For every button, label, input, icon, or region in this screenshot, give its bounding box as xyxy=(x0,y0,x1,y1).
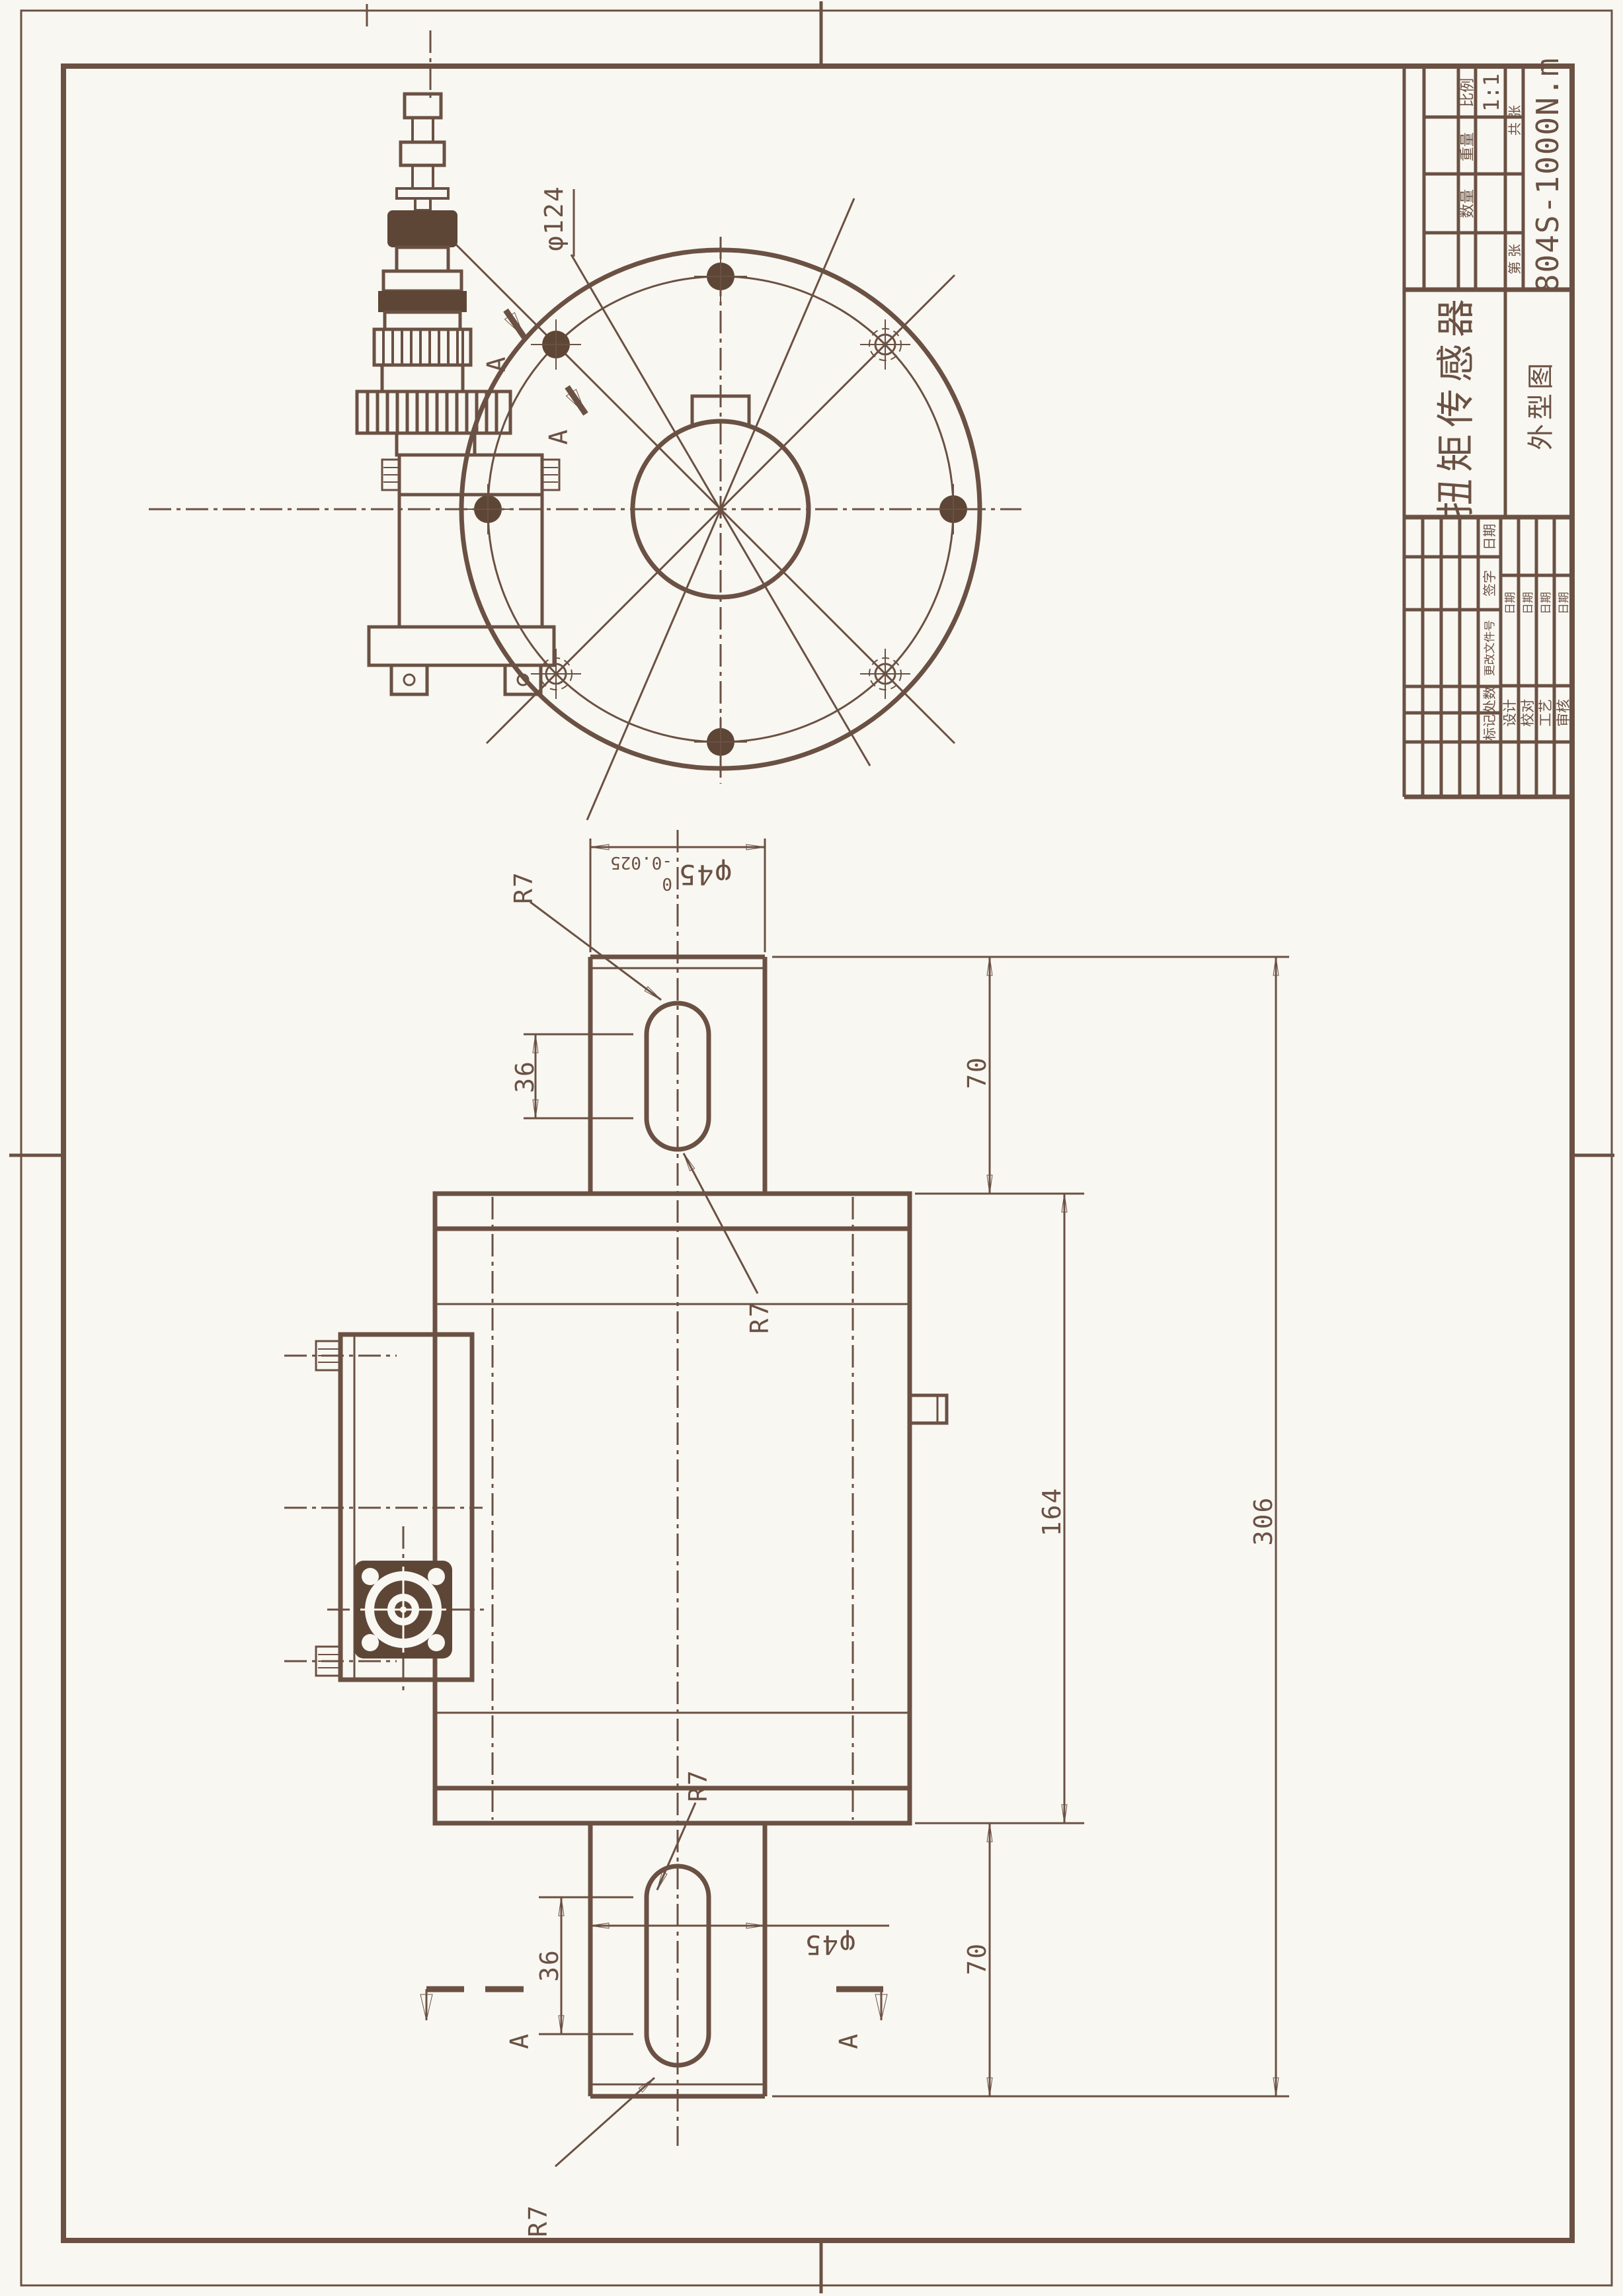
dimension-annotations: φ45 0 -0.025 R7 R7 36 70 xyxy=(509,839,1289,2237)
svg-text:0: 0 xyxy=(662,874,672,893)
scale-value: 1:1 xyxy=(1479,73,1504,112)
dim-shaft-dia-bottom: φ45 xyxy=(804,1929,855,1959)
dim-total-length: 306 xyxy=(1249,1496,1278,1546)
dim-shaft-dia-top: φ45 0 -0.025 xyxy=(610,852,732,893)
role-process: 工艺 xyxy=(1538,699,1554,727)
date-label: 日期 xyxy=(1540,592,1553,614)
connector-box-front xyxy=(284,1334,484,1694)
rev-field-change-doc: 更改文件号 xyxy=(1484,620,1497,676)
role-design: 设计 xyxy=(1502,699,1518,727)
product-name: 扭矩传感器 xyxy=(1433,292,1478,517)
rev-field-count: 处数 xyxy=(1482,686,1497,713)
dim-keyway-length: 36 xyxy=(535,1949,564,1982)
section-label-a: A xyxy=(834,2033,863,2049)
dim-keyway-radius: R7 xyxy=(745,1301,774,1334)
flange-end-view: φ124 A A xyxy=(149,185,1021,820)
svg-text:-0.025: -0.025 xyxy=(610,852,672,872)
quantity-label: 数量 xyxy=(1460,189,1476,218)
role-approve: 审核 xyxy=(1556,699,1571,727)
section-markers-bottom: A A xyxy=(426,1989,883,2049)
dim-keyway-length: 36 xyxy=(510,1060,539,1093)
role-check: 校对 xyxy=(1520,699,1536,727)
date-label: 日期 xyxy=(1504,592,1517,614)
bracket-screw-right xyxy=(542,460,559,490)
part-number: 804S-1000N.m xyxy=(1530,57,1565,292)
rev-field-mark: 标记 xyxy=(1482,714,1497,741)
dim-shaft-length: 70 xyxy=(963,1942,992,1975)
section-label-a: A xyxy=(482,356,511,372)
adjust-tab xyxy=(910,1395,947,1423)
knurled-ring-large xyxy=(357,391,510,433)
view-name: 外型图 xyxy=(1526,359,1556,450)
dim-body-length: 164 xyxy=(1037,1487,1066,1537)
date-label: 日期 xyxy=(1522,592,1535,614)
section-label-a: A xyxy=(505,2033,534,2049)
sheet-no-label: 第 张 xyxy=(1507,244,1523,274)
dim-keyway-radius: R7 xyxy=(524,2204,553,2237)
connector-bracket-plate xyxy=(399,495,542,627)
knurled-ring-small xyxy=(374,329,471,365)
sensor-body xyxy=(435,1194,947,1823)
dim-bolt-circle: φ124 xyxy=(539,185,569,251)
weight-label: 重量 xyxy=(1460,132,1476,161)
title-block: 804S-1000N.m 扭矩传感器 外型图 比例 1:1 重量 数量 共 张 … xyxy=(1404,57,1572,797)
connector-shell xyxy=(387,210,457,247)
connector-face xyxy=(327,1526,484,1694)
dim-keyway-radius: R7 xyxy=(684,1769,713,1802)
date-label: 日期 xyxy=(1558,592,1571,614)
sheet-total-label: 共 张 xyxy=(1507,105,1523,136)
rev-field-signature: 签字 xyxy=(1482,570,1497,596)
bracket-screw-left xyxy=(382,460,399,490)
drawing-sheet: 804S-1000N.m 扭矩传感器 外型图 比例 1:1 重量 数量 共 张 … xyxy=(0,0,1623,2296)
rev-field-date: 日期 xyxy=(1482,524,1497,550)
section-label-a: A xyxy=(544,429,573,445)
connector-assembly xyxy=(357,30,559,694)
dim-keyway-radius: R7 xyxy=(509,871,538,904)
svg-text:φ45: φ45 xyxy=(678,858,732,891)
scale-label: 比例 xyxy=(1460,78,1476,107)
dim-shaft-length: 70 xyxy=(963,1056,992,1089)
